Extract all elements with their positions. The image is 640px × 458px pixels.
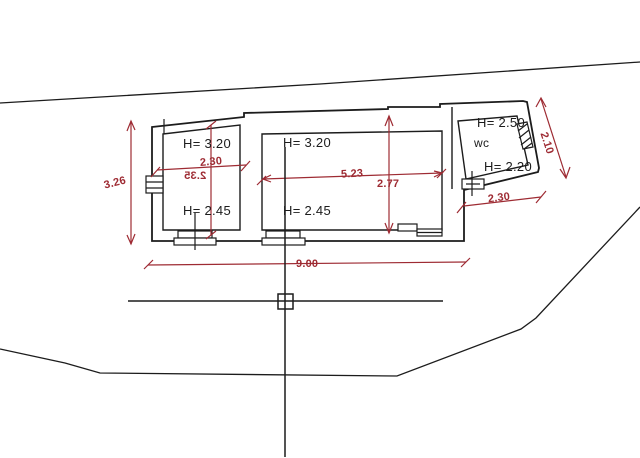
main-room-width-dim-label: 5.23 (341, 168, 364, 180)
drawing-linework (0, 0, 640, 458)
crosshair-cursor-icon (128, 147, 443, 457)
main-room-window-right-icon (398, 224, 442, 236)
cad-canvas[interactable]: H= 3.20 H= 2.45 H= 3.20 H= 2.45 H= 2.50 … (0, 0, 640, 458)
site-boundary-right (0, 207, 640, 376)
main-room-height-bottom-label: H= 2.45 (283, 204, 331, 217)
left-room-window-icon (174, 213, 216, 250)
dim-overall-left-height (127, 121, 135, 244)
main-room-height-top-label: H= 3.20 (283, 136, 331, 149)
left-room-height-bottom-label: H= 2.45 (183, 204, 231, 217)
main-room-depth-dim-label: 2.77 (377, 179, 399, 190)
wc-height-top-label: H= 2.50 (477, 116, 525, 129)
site-boundary-top (0, 62, 640, 103)
wc-room-name-label: wc (474, 137, 489, 149)
wc-height-bottom-label: H= 2.20 (484, 160, 532, 173)
left-wall-window-icon (146, 176, 163, 193)
overall-width-dim-label: 9.00 (296, 259, 318, 270)
main-room-window-left-icon (262, 231, 305, 245)
left-room-depth-dim-label: 2.35 (184, 171, 206, 182)
left-room-width-dim-label: 2.30 (200, 156, 223, 169)
left-room-height-top-label: H= 3.20 (183, 137, 231, 150)
